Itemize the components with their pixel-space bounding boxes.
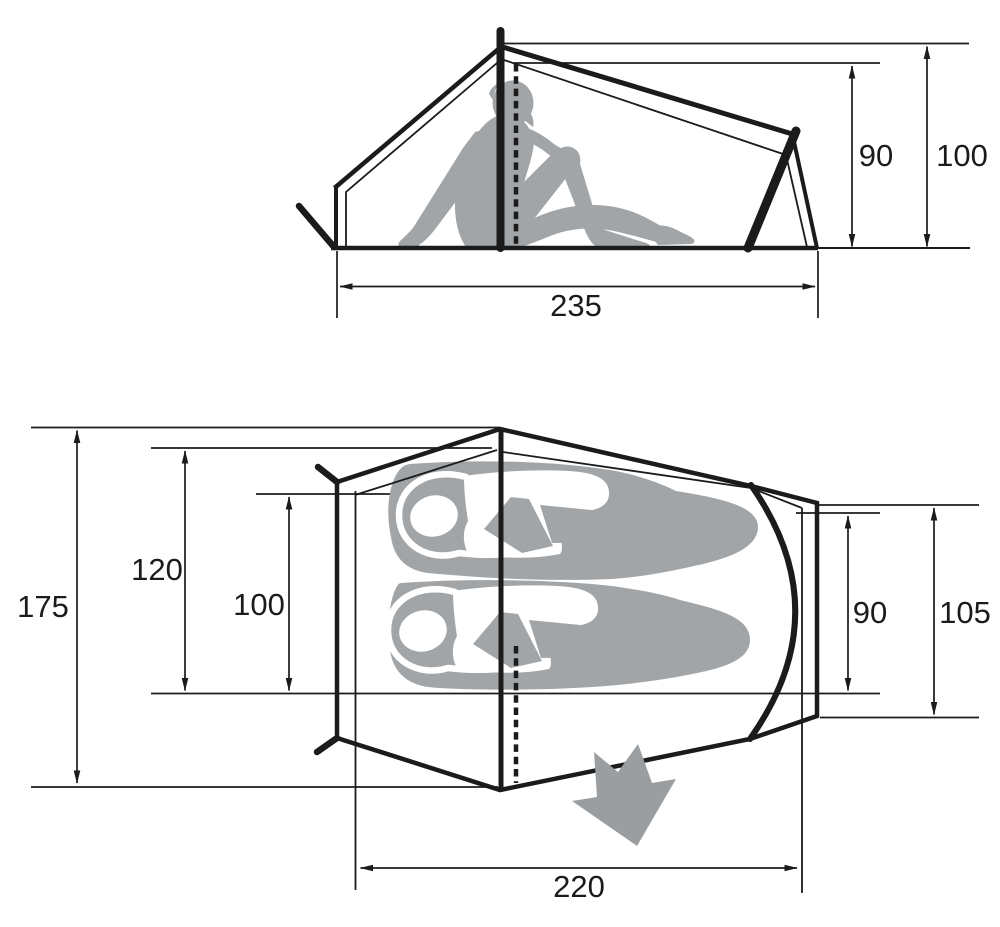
svg-text:90: 90	[853, 595, 887, 630]
svg-text:120: 120	[131, 552, 183, 587]
svg-text:220: 220	[553, 869, 605, 904]
svg-text:175: 175	[17, 589, 69, 624]
svg-text:90: 90	[859, 138, 893, 173]
svg-text:105: 105	[939, 595, 991, 630]
svg-text:100: 100	[233, 587, 285, 622]
svg-text:235: 235	[550, 288, 602, 323]
svg-text:100: 100	[936, 138, 988, 173]
